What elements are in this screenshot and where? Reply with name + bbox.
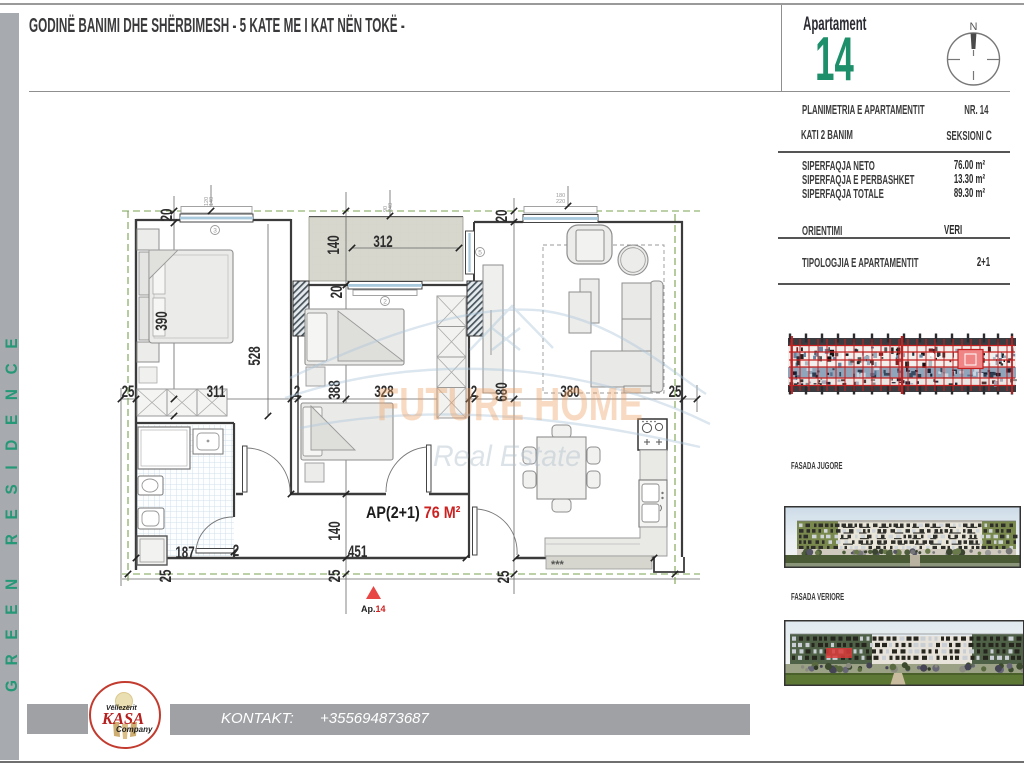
svg-text:20: 20 (328, 286, 347, 299)
svg-text:311: 311 (207, 383, 226, 402)
svg-text:25: 25 (122, 383, 135, 402)
svg-text:220: 220 (556, 199, 565, 205)
svg-text:25: 25 (495, 571, 514, 584)
svg-text:2: 2 (233, 542, 239, 561)
svg-text:N: N (970, 21, 978, 33)
svg-text:312: 312 (373, 233, 392, 252)
svg-text:FUTURE HOME: FUTURE HOME (377, 378, 643, 430)
svg-text:***: *** (551, 559, 565, 571)
svg-text:140: 140 (325, 235, 344, 254)
svg-text:25: 25 (157, 570, 176, 583)
svg-text:20: 20 (493, 210, 512, 223)
svg-text:2: 2 (383, 299, 387, 306)
svg-text:25: 25 (326, 570, 345, 583)
svg-text:Real Estate: Real Estate (433, 440, 581, 473)
svg-text:Ap.14: Ap.14 (361, 604, 386, 614)
svg-text:187: 187 (175, 544, 194, 563)
svg-text:5: 5 (478, 250, 482, 257)
svg-text:3: 3 (213, 228, 217, 235)
svg-text:25: 25 (669, 383, 682, 402)
svg-text:528: 528 (246, 346, 265, 365)
svg-text:Company: Company (116, 725, 153, 734)
svg-text:390: 390 (153, 311, 172, 330)
svg-text:90: 90 (383, 206, 389, 212)
svg-text:AP(2+1) 76 M²: AP(2+1) 76 M² (366, 504, 460, 522)
svg-text:140: 140 (326, 521, 345, 540)
svg-text:20: 20 (158, 209, 177, 222)
svg-text:451: 451 (348, 543, 367, 562)
svg-text:120: 120 (204, 197, 210, 206)
